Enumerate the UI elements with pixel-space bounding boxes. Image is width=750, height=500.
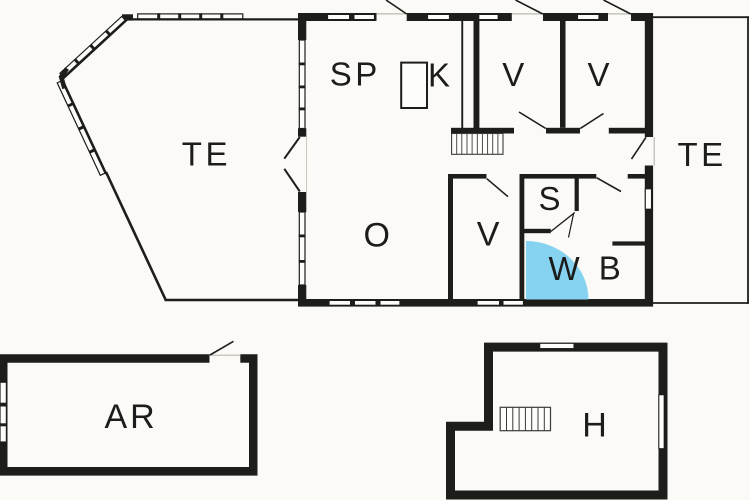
svg-text:V: V: [588, 56, 610, 93]
svg-text:V: V: [502, 56, 524, 93]
svg-text:H: H: [582, 406, 607, 444]
svg-text:TE: TE: [678, 136, 727, 173]
svg-text:K: K: [428, 56, 450, 93]
svg-text:V: V: [477, 215, 500, 253]
svg-text:O: O: [364, 217, 390, 255]
svg-text:AR: AR: [105, 398, 158, 436]
svg-text:S: S: [539, 180, 561, 217]
svg-text:TE: TE: [182, 136, 231, 173]
svg-text:W: W: [549, 250, 581, 287]
svg-text:B: B: [599, 250, 621, 287]
svg-text:SP: SP: [330, 56, 381, 93]
